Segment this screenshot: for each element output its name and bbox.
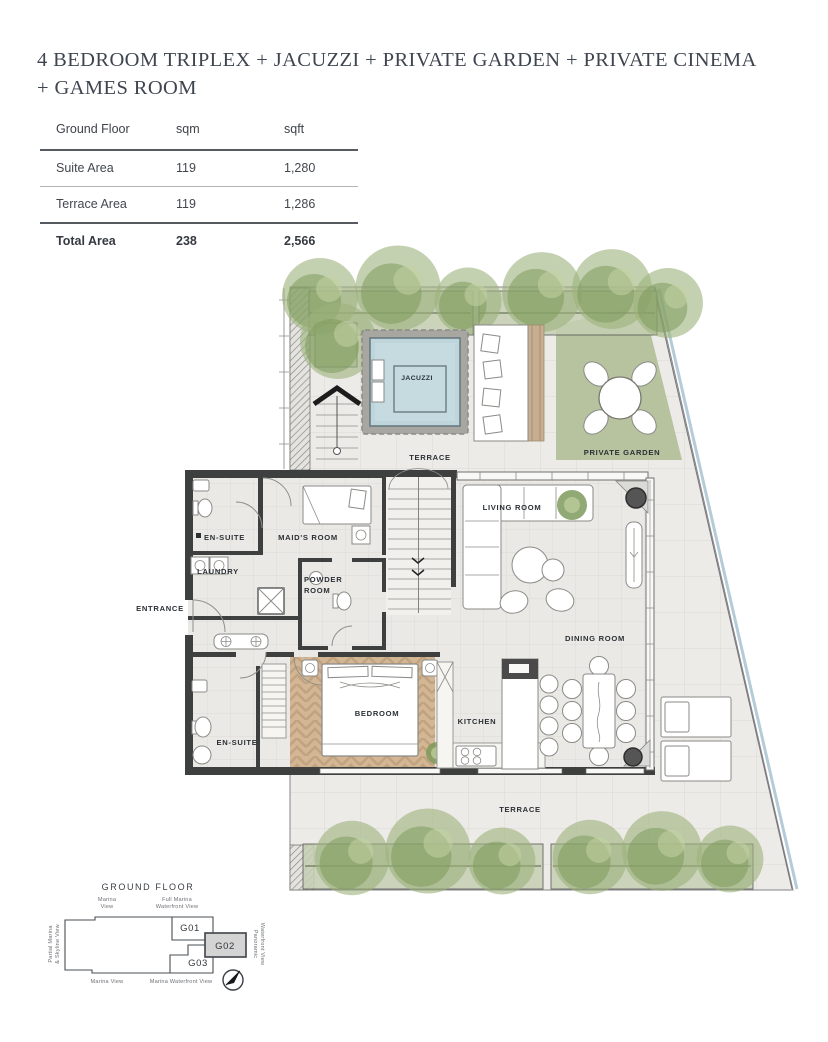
svg-text:Marina View: Marina View [91, 979, 125, 985]
key-plan-title: GROUND FLOOR [102, 882, 195, 892]
label-bedroom: BEDROOM [355, 709, 400, 718]
window-wall-right [646, 478, 654, 770]
svg-text:Marina: Marina [98, 897, 117, 903]
label-en-suite-top: EN-SUITE [204, 533, 245, 542]
key-plan: GROUND FLOOR G01 G02 G03 Marina View Ful… [48, 882, 265, 990]
svg-text:View: View [101, 904, 115, 910]
kitchen-island [502, 659, 538, 769]
label-kitchen: KITCHEN [458, 717, 497, 726]
svg-text:Marina Waterfront View: Marina Waterfront View [150, 979, 213, 985]
unit-g02: G02 [215, 941, 235, 952]
svg-text:& Skyline View: & Skyline View [55, 923, 61, 963]
label-laundry: LAUNDRY [197, 567, 239, 576]
tree [355, 245, 440, 330]
hall-doormat [214, 634, 268, 649]
tree [385, 808, 470, 893]
label-entrance: ENTRANCE [136, 604, 184, 613]
bottom-windows [320, 769, 644, 774]
label-living-room: LIVING ROOM [483, 503, 542, 512]
tree [435, 268, 502, 335]
bed [302, 660, 438, 756]
tree [622, 811, 702, 891]
brochure-page: 4 BEDROOM TRIPLEX + JACUZZI + PRIVATE GA… [0, 0, 828, 1042]
tree [553, 820, 627, 894]
tree [315, 821, 389, 895]
svg-text:Full Marina: Full Marina [162, 897, 193, 903]
svg-text:Panoramic: Panoramic [252, 930, 258, 959]
label-terrace-lower: TERRACE [499, 805, 541, 814]
svg-text:Waterfront View: Waterfront View [156, 904, 199, 910]
floor-plan: PRIVATE GARDEN [0, 0, 828, 1042]
svg-text:Partial Marina: Partial Marina [48, 925, 54, 963]
svg-text:Waterfront View: Waterfront View [259, 923, 265, 966]
compass-icon [223, 970, 243, 990]
unit-g03: G03 [188, 958, 208, 969]
tree [469, 828, 536, 895]
jacuzzi: JACUZZI [362, 330, 468, 434]
label-powder-2: ROOM [304, 586, 330, 595]
column-top [626, 488, 646, 508]
label-dining-room: DINING ROOM [565, 634, 625, 643]
label-jacuzzi: JACUZZI [401, 375, 433, 382]
tree [633, 268, 703, 338]
label-powder-1: POWDER [304, 575, 342, 584]
lounge-bench [474, 325, 544, 441]
wardrobe [262, 664, 286, 738]
unit-g01: G01 [180, 923, 200, 934]
indoor-stairs [386, 469, 451, 615]
label-private-garden: PRIVATE GARDEN [584, 448, 661, 457]
label-en-suite-bottom: EN-SUITE [216, 738, 257, 747]
label-maids-room: MAID'S ROOM [278, 533, 338, 542]
label-terrace-upper: TERRACE [409, 453, 451, 462]
column-bottom [624, 748, 642, 766]
window-door-panel [626, 522, 642, 588]
tree [502, 252, 582, 332]
tree [697, 826, 764, 893]
